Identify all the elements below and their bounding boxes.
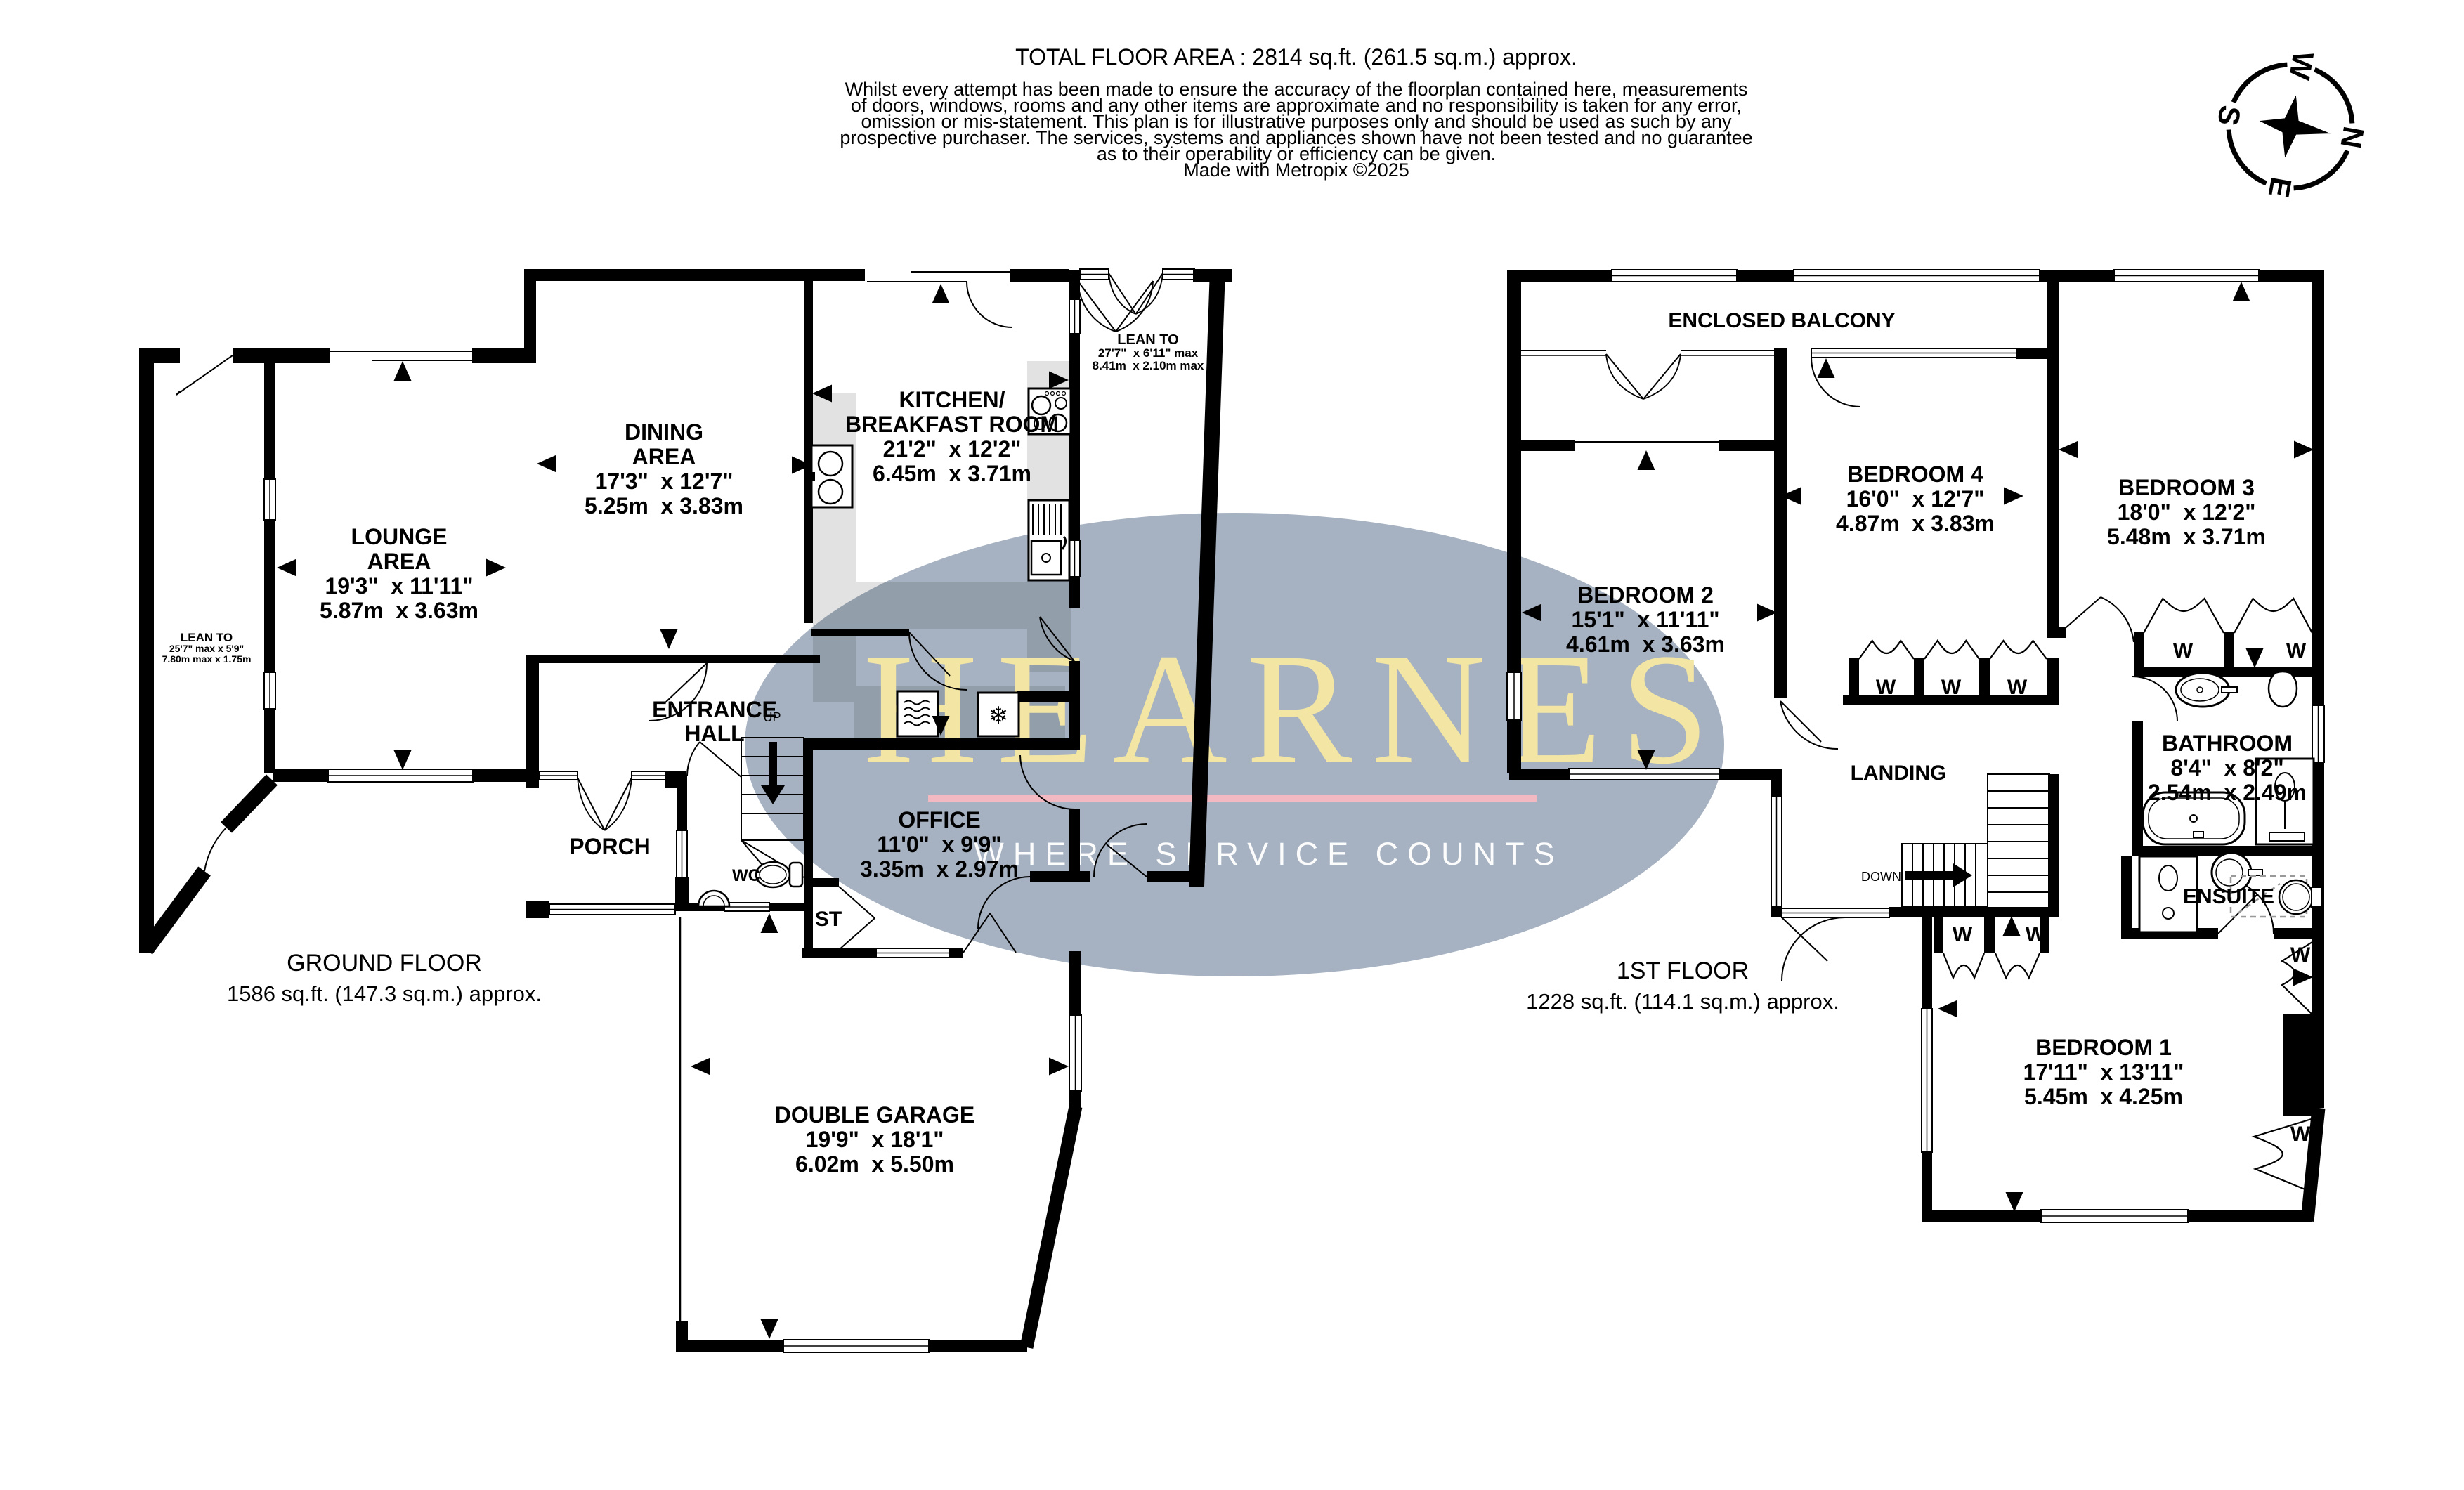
svg-text:8'4" x 8'2": 8'4" x 8'2" <box>2170 755 2283 780</box>
svg-text:6.45m x 3.71m: 6.45m x 3.71m <box>873 461 1031 486</box>
svg-text:7.80m max x 1.75m: 7.80m max x 1.75m <box>162 653 252 665</box>
svg-text:W: W <box>2286 639 2307 662</box>
svg-text:AREA: AREA <box>367 549 431 574</box>
svg-text:HALL: HALL <box>684 721 744 746</box>
svg-text:OFFICE: OFFICE <box>898 807 980 832</box>
svg-text:W: W <box>1953 923 1973 946</box>
svg-text:21'2" x 12'2": 21'2" x 12'2" <box>883 436 1022 462</box>
svg-text:DOWN: DOWN <box>1861 870 1901 884</box>
svg-text:ENCLOSED BALCONY: ENCLOSED BALCONY <box>1668 309 1895 332</box>
svg-text:GROUND FLOOR: GROUND FLOOR <box>287 950 482 976</box>
svg-text:19'9" x 18'1": 19'9" x 18'1" <box>806 1127 944 1152</box>
svg-text:LANDING: LANDING <box>1851 762 1947 785</box>
svg-text:17'3" x 12'7": 17'3" x 12'7" <box>595 469 734 494</box>
svg-text:BATHROOM: BATHROOM <box>2162 731 2293 756</box>
svg-text:3.35m x 2.97m: 3.35m x 2.97m <box>860 856 1019 882</box>
svg-text:W: W <box>2290 1123 2311 1146</box>
svg-text:5.48m x 3.71m: 5.48m x 3.71m <box>2107 524 2266 549</box>
svg-text:5.45m x 4.25m: 5.45m x 4.25m <box>2024 1084 2183 1109</box>
svg-text:16'0" x 12'7": 16'0" x 12'7" <box>1846 486 1985 511</box>
svg-text:8.41m x 2.10m max: 8.41m x 2.10m max <box>1093 359 1204 372</box>
svg-text:17'11" x 13'11": 17'11" x 13'11" <box>2023 1059 2184 1085</box>
svg-text:BEDROOM 4: BEDROOM 4 <box>1847 462 1983 487</box>
svg-text:4.87m x 3.83m: 4.87m x 3.83m <box>1836 511 1995 536</box>
svg-text:BEDROOM 1: BEDROOM 1 <box>2035 1035 2172 1060</box>
svg-text:5.87m x 3.63m: 5.87m x 3.63m <box>320 598 478 623</box>
svg-text:LOUNGE: LOUNGE <box>351 524 448 549</box>
svg-text:KITCHEN/: KITCHEN/ <box>899 387 1005 412</box>
svg-text:W: W <box>2007 676 2028 699</box>
svg-text:5.25m x 3.83m: 5.25m x 3.83m <box>585 493 743 518</box>
svg-text:15'1" x 11'11": 15'1" x 11'11" <box>1571 607 1719 632</box>
svg-text:TOTAL FLOOR AREA : 2814 sq.ft.: TOTAL FLOOR AREA : 2814 sq.ft. (261.5 sq… <box>1015 44 1577 70</box>
svg-text:AREA: AREA <box>632 444 696 469</box>
svg-text:W: W <box>1941 676 1962 699</box>
svg-text:W: W <box>2290 943 2311 967</box>
svg-text:4.61m x 3.63m: 4.61m x 3.63m <box>1566 632 1725 657</box>
svg-text:ST: ST <box>815 908 842 931</box>
svg-text:1228 sq.ft. (114.1 sq.m.) appr: 1228 sq.ft. (114.1 sq.m.) approx. <box>1526 989 1839 1014</box>
svg-text:BEDROOM 2: BEDROOM 2 <box>1577 582 1714 608</box>
svg-text:25'7" max x 5'9": 25'7" max x 5'9" <box>169 643 244 654</box>
svg-text:DOUBLE GARAGE: DOUBLE GARAGE <box>775 1102 974 1128</box>
svg-text:BEDROOM 3: BEDROOM 3 <box>2118 475 2255 500</box>
svg-text:1586 sq.ft. (147.3 sq.m.) appr: 1586 sq.ft. (147.3 sq.m.) approx. <box>227 981 542 1006</box>
svg-text:W: W <box>2026 923 2046 946</box>
svg-text:27'7" x 6'11" max: 27'7" x 6'11" max <box>1098 346 1199 360</box>
svg-text:❄: ❄ <box>989 702 1009 729</box>
svg-text:LEAN TO: LEAN TO <box>1117 332 1178 348</box>
svg-text:WC: WC <box>732 866 760 885</box>
svg-text:PORCH: PORCH <box>569 834 651 859</box>
svg-text:19'3" x 11'11": 19'3" x 11'11" <box>325 573 473 599</box>
svg-text:1ST FLOOR: 1ST FLOOR <box>1617 958 1749 984</box>
svg-text:2.54m x 2.49m: 2.54m x 2.49m <box>2148 780 2307 805</box>
svg-text:ENTRANCE: ENTRANCE <box>652 697 777 722</box>
svg-text:11'0" x 9'9": 11'0" x 9'9" <box>877 832 1001 857</box>
svg-text:Made with Metropix ©2025: Made with Metropix ©2025 <box>1183 159 1409 181</box>
svg-text:DINING: DINING <box>625 419 703 445</box>
svg-text:W: W <box>2173 639 2194 662</box>
svg-text:W: W <box>2283 49 2320 83</box>
svg-text:ENSUITE: ENSUITE <box>2183 885 2274 908</box>
svg-text:18'0" x 12'2": 18'0" x 12'2" <box>2118 499 2256 525</box>
svg-text:BREAKFAST ROOM: BREAKFAST ROOM <box>845 412 1059 437</box>
svg-text:6.02m x 5.50m: 6.02m x 5.50m <box>795 1151 954 1177</box>
svg-text:W: W <box>1876 676 1896 699</box>
svg-text:WHERE SERVICE COUNTS: WHERE SERVICE COUNTS <box>974 836 1563 872</box>
